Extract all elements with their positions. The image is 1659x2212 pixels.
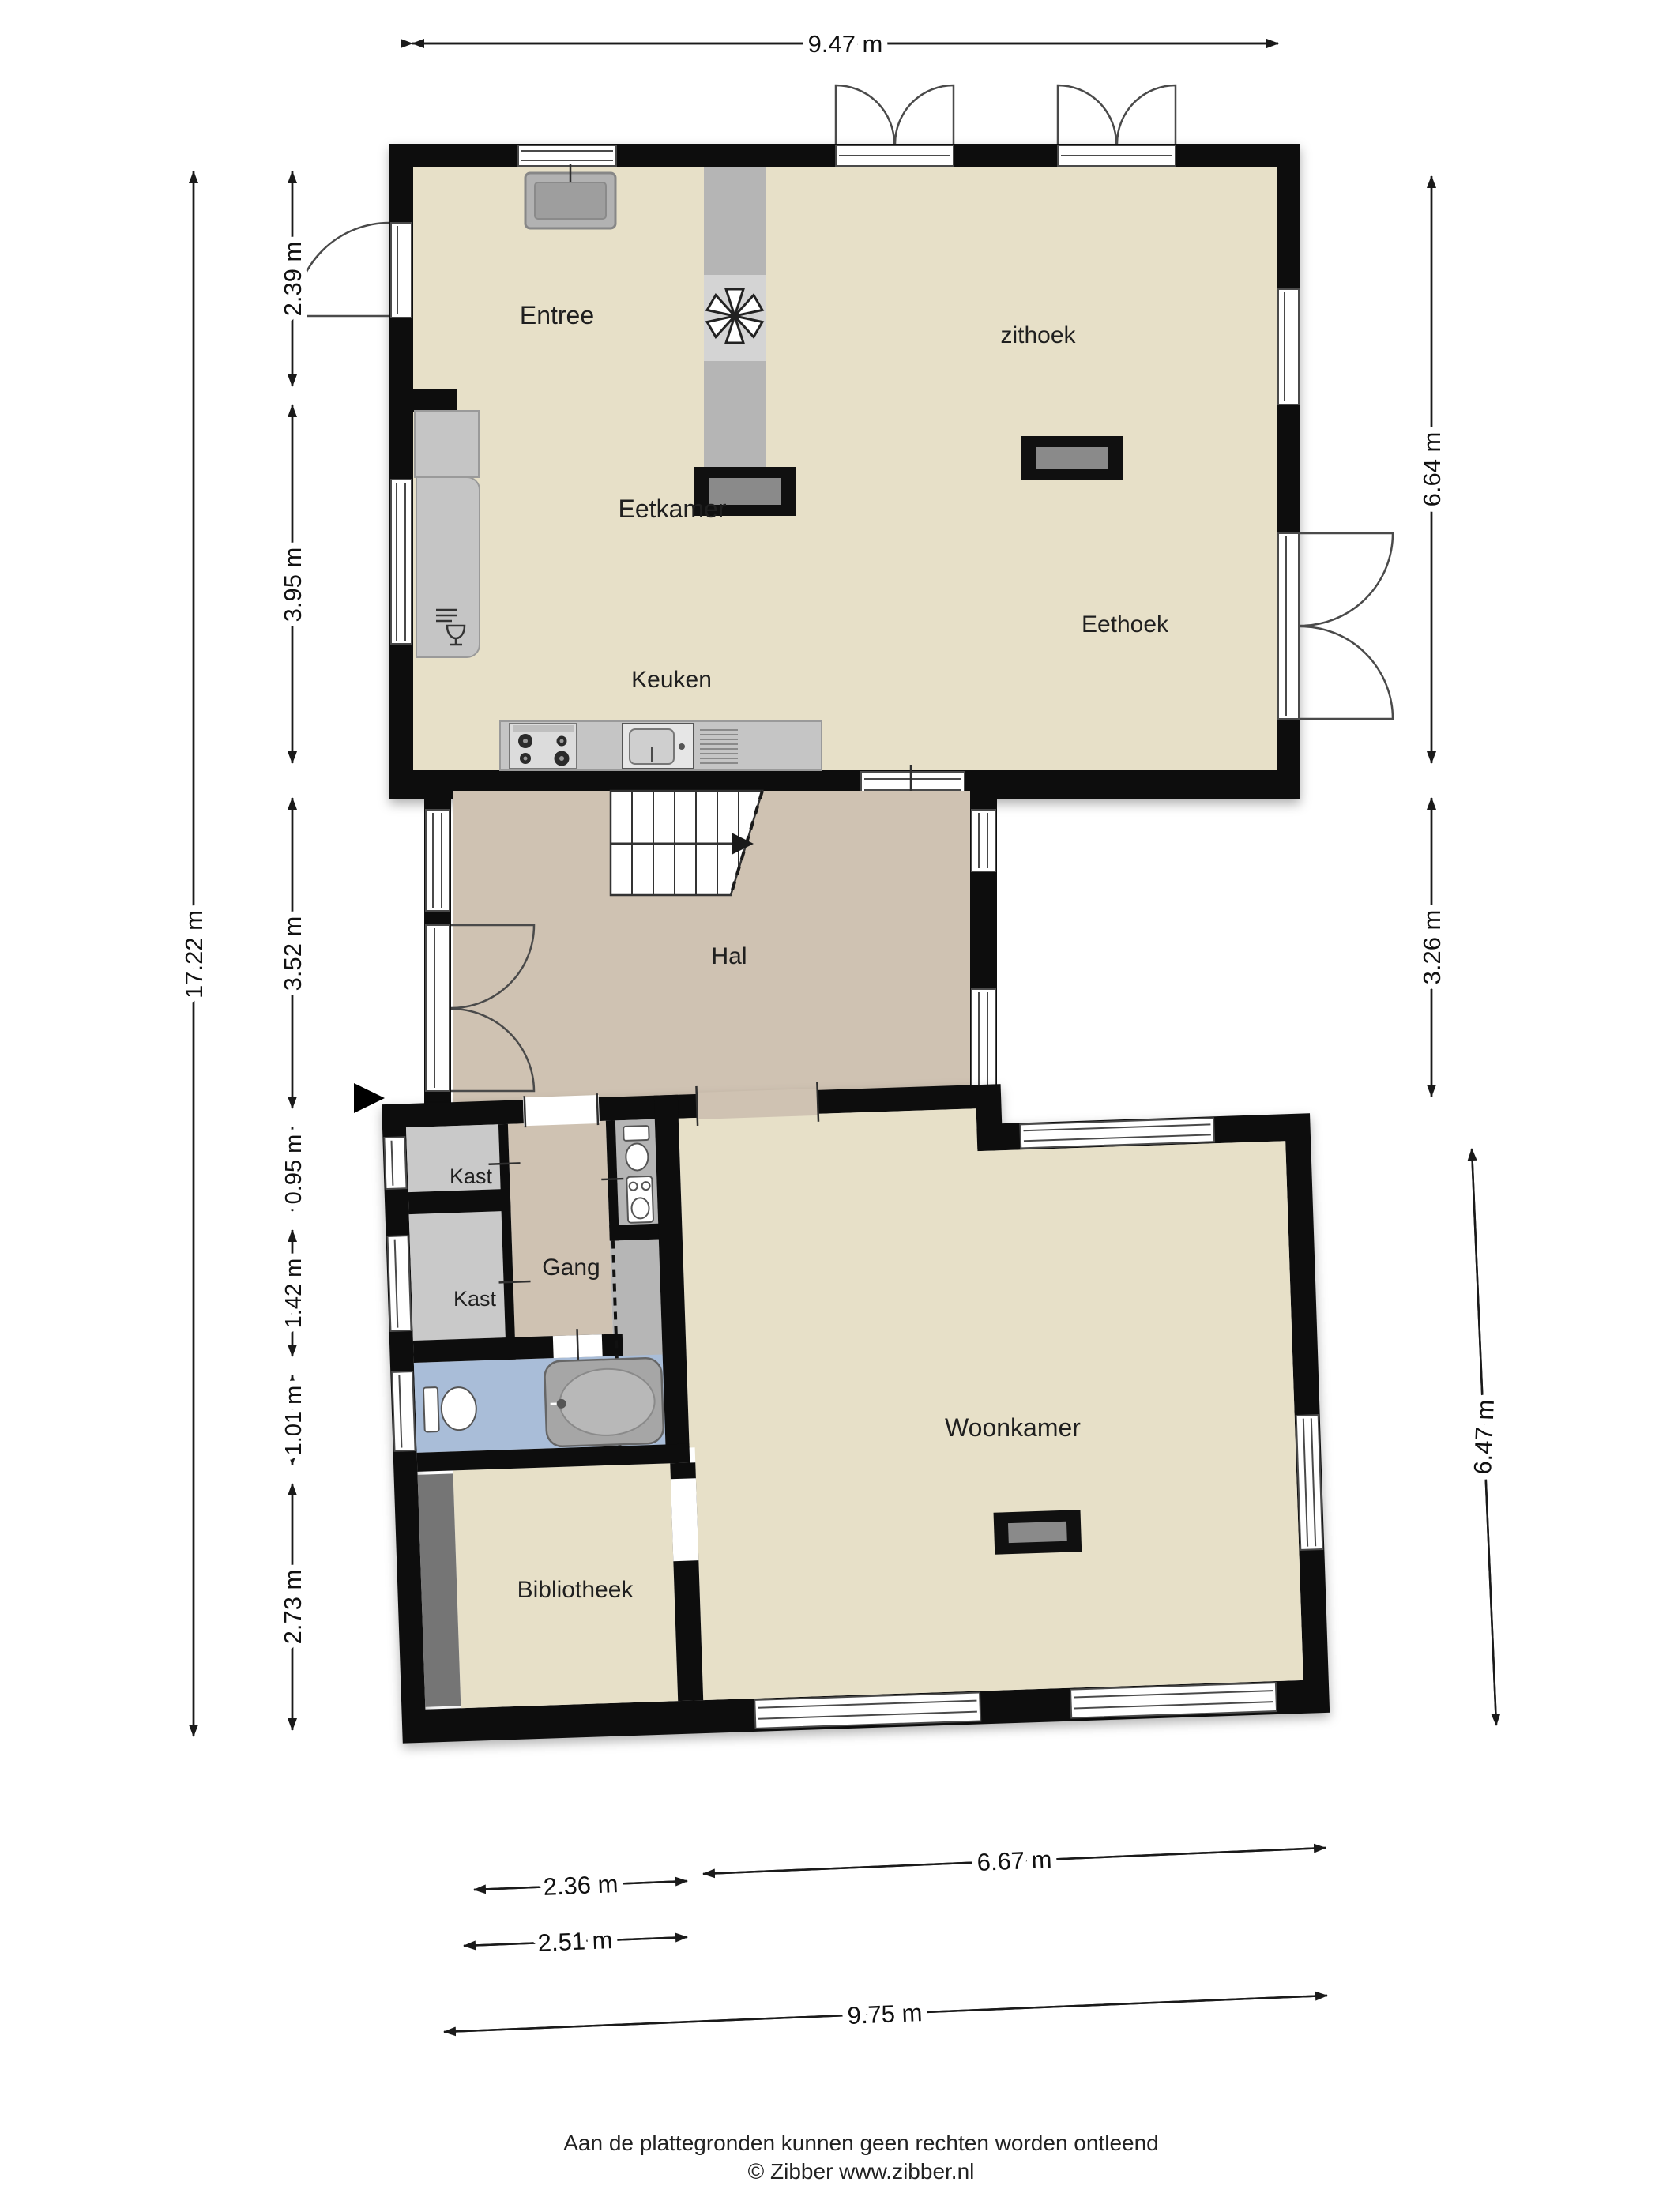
door-hall-corridor — [523, 1095, 600, 1126]
dimension-label-right-2: 3.26 m — [1418, 910, 1446, 985]
dimension-label-left-2: 3.95 m — [279, 547, 307, 623]
french-door-icon — [836, 85, 954, 166]
room-label-zithoek: zithoek — [1000, 322, 1076, 348]
room-label-kast-1: Kast — [450, 1164, 493, 1188]
dimension-label-bottom-2: 6.67 m — [976, 1845, 1052, 1876]
dimension-label-left-3: 3.52 m — [279, 916, 307, 991]
dimension-label-left-6: 1.01 m — [281, 1386, 307, 1456]
room-label-gang: Gang — [542, 1255, 600, 1281]
window-icon — [388, 1236, 412, 1331]
room-floor-corridor — [508, 1121, 613, 1337]
dimension-label-top: 9.47 m — [808, 30, 883, 58]
dimension-label-left-1: 2.39 m — [279, 242, 307, 317]
footer-disclaimer: Aan de plattegronden kunnen geen rechten… — [563, 2131, 1158, 2155]
window-icon — [392, 1371, 415, 1451]
room-label-woonkamer: Woonkamer — [945, 1413, 1081, 1442]
window-icon — [1296, 1415, 1323, 1550]
room-label-hal: Hal — [711, 943, 747, 969]
wall-stub — [413, 389, 457, 412]
sofa — [525, 164, 615, 228]
room-label-entree: Entree — [520, 301, 594, 329]
upper-block — [389, 144, 1300, 799]
stove-icon — [510, 724, 577, 769]
dimension-label-left-5: 1.42 m — [281, 1258, 307, 1329]
room-floor-livingroom — [679, 1098, 1303, 1700]
window-icon — [391, 480, 412, 644]
heater-icon — [1021, 436, 1123, 480]
window-icon — [384, 1137, 406, 1189]
toilet-bowl-icon — [626, 1143, 649, 1171]
toilet-bowl-icon — [441, 1386, 477, 1430]
room-floor-living-dining — [413, 167, 1277, 770]
toilet-tank-icon — [423, 1387, 439, 1432]
window-icon — [972, 810, 995, 871]
room-label-kast-2: Kast — [453, 1287, 497, 1311]
door-library-livingroom — [671, 1478, 698, 1561]
lower-block — [382, 1066, 1330, 1743]
window-icon — [1278, 289, 1299, 404]
room-label-eetkamer: Eetkamer — [619, 495, 727, 523]
dimension-label-bottom-3: 2.51 m — [537, 1926, 613, 1957]
window-icon — [518, 145, 616, 166]
dimension-label-left-7: 2.73 m — [279, 1570, 307, 1645]
dimension-label-bottom-4: 9.75 m — [847, 1999, 923, 2030]
bathtub-icon — [544, 1358, 664, 1447]
fireplace-icon — [994, 1510, 1082, 1555]
room-label-eethoek: Eethoek — [1082, 611, 1169, 638]
dimension-label-total-height: 17.22 m — [180, 910, 208, 999]
dimension-label-left-4: 0.95 m — [281, 1134, 307, 1205]
footer-copyright: © Zibber www.zibber.nl — [748, 2159, 975, 2184]
dimension-label-right-1: 6.64 m — [1418, 432, 1446, 507]
entry-door-icon — [295, 223, 412, 318]
floorplan-page: Entree zithoek Eetkamer Eethoek Keuken H… — [0, 0, 1659, 2212]
room-label-keuken: Keuken — [631, 667, 712, 693]
french-door-icon — [1058, 85, 1176, 166]
toilet-tank-icon — [623, 1126, 649, 1141]
passage-hall-livingroom — [697, 1089, 818, 1119]
dimension-label-right-3: 6.47 m — [1469, 1399, 1499, 1475]
window-icon — [1070, 1683, 1277, 1718]
window-icon — [426, 810, 450, 911]
entrance-arrow-icon — [354, 1083, 385, 1113]
room-floor-closet-2 — [409, 1211, 506, 1341]
room-label-bibliotheek: Bibliotheek — [517, 1577, 634, 1603]
sideboard-counter — [415, 411, 480, 657]
dimension-label-bottom-1: 2.36 m — [543, 1870, 619, 1901]
chimney — [704, 167, 766, 467]
french-door-icon — [1278, 533, 1393, 719]
kitchen-counter — [500, 721, 822, 770]
floorplan-drawing: Entree zithoek Eetkamer Eethoek Keuken H… — [0, 0, 1659, 2212]
